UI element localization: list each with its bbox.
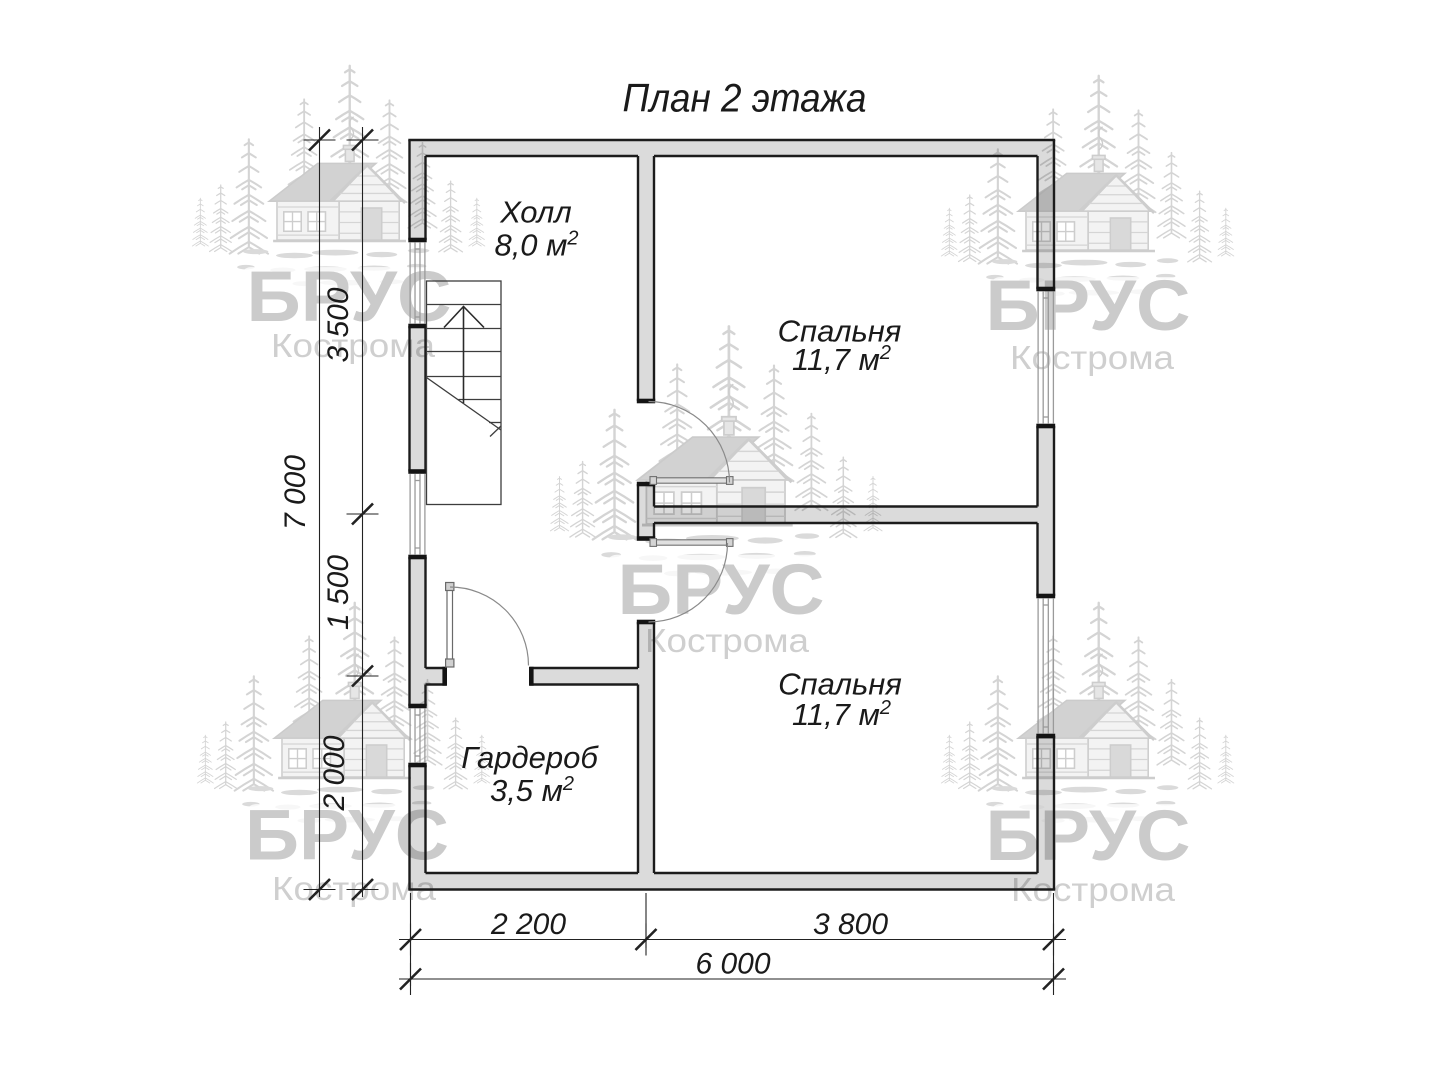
svg-text:БРУС: БРУС xyxy=(986,267,1191,346)
svg-text:7 000: 7 000 xyxy=(279,455,312,530)
svg-text:6 000: 6 000 xyxy=(695,948,770,981)
svg-text:Гардероб: Гардероб xyxy=(461,740,599,775)
svg-text:Кострома: Кострома xyxy=(645,622,810,659)
svg-text:2 200: 2 200 xyxy=(490,908,566,941)
svg-text:3,5 м2: 3,5 м2 xyxy=(490,773,574,808)
svg-text:1 500: 1 500 xyxy=(322,555,355,630)
svg-text:3 500: 3 500 xyxy=(322,287,355,362)
svg-text:11,7 м2: 11,7 м2 xyxy=(792,342,891,377)
svg-text:БРУС: БРУС xyxy=(618,551,825,630)
svg-text:Холл: Холл xyxy=(499,195,572,230)
svg-text:2 000: 2 000 xyxy=(318,735,351,811)
svg-text:БРУС: БРУС xyxy=(986,797,1191,876)
svg-text:План 2 этажа: План 2 этажа xyxy=(623,77,867,121)
svg-text:Кострома: Кострома xyxy=(1010,339,1175,376)
svg-text:11,7 м2: 11,7 м2 xyxy=(792,697,891,732)
svg-text:8,0 м2: 8,0 м2 xyxy=(494,228,578,263)
svg-text:3 800: 3 800 xyxy=(813,908,888,941)
